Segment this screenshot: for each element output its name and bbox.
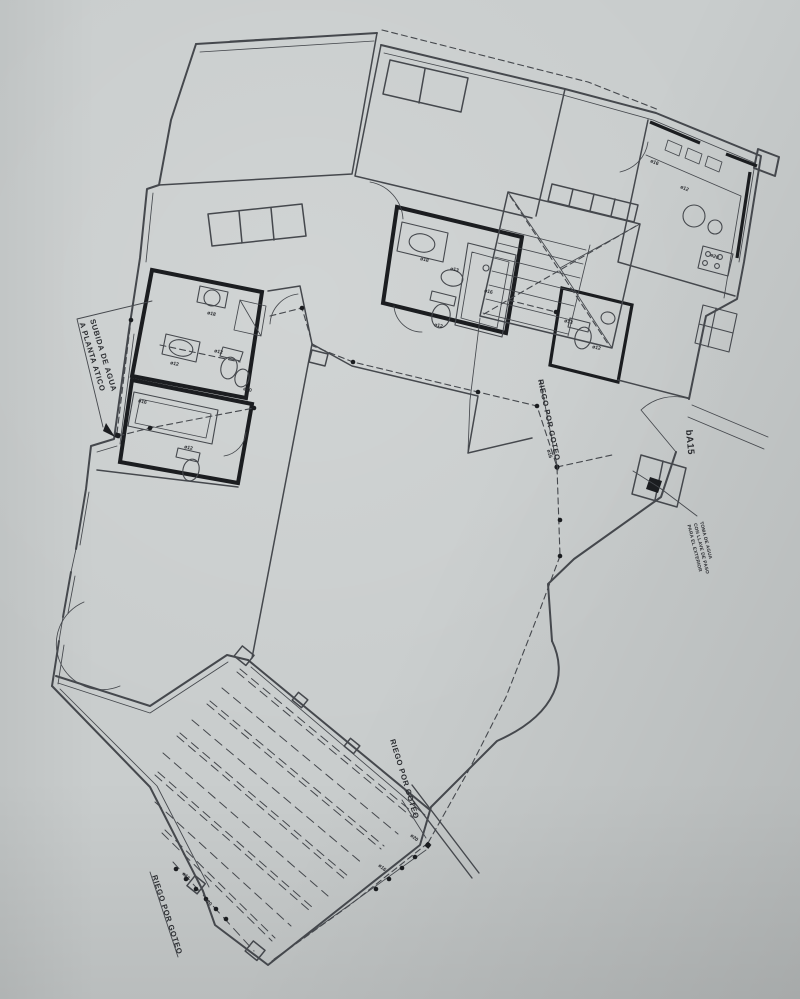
sanitary-fixtures <box>128 205 737 483</box>
exterior-walls-inner-leaf <box>58 37 768 959</box>
terrace-hatch <box>155 669 416 951</box>
pipe-diameter-tag: ø20 <box>203 897 213 907</box>
pipe-diameter-tag: ø12 <box>679 184 689 193</box>
pipe-diameter-tag: ø18 <box>207 310 217 318</box>
label-riego-3-text: RIEGO POR GOTEO <box>150 874 184 956</box>
label-door-code-text: bA15 <box>683 429 696 455</box>
pipe-diameter-tag: ø16 <box>649 158 659 167</box>
pipe-diameter-tag: ø12 <box>184 444 194 452</box>
pipe-diameter-tag: ø18 <box>420 256 430 264</box>
floor-plan-photo: SUBIDA DE AGUA A PLANTA ATICO RIEGO POR … <box>0 0 800 999</box>
pipe-diameter-tag: ø10 <box>243 386 253 394</box>
door-arcs <box>56 142 689 690</box>
pipe-diameter-tag: ø13 <box>564 318 574 326</box>
exterior-walls <box>52 33 779 965</box>
label-riego-3: RIEGO POR GOTEO <box>150 874 184 956</box>
pipe-diameter-tags: ø18ø12ø12ø10ø16ø12ø18ø13ø12ø16ø13ø12ø16ø… <box>138 158 720 907</box>
pipe-diameter-tag: ø20 <box>709 252 719 261</box>
pipe-diameter-tag: ø12 <box>170 360 180 368</box>
pipe-diameter-tag: ø12 <box>592 344 602 352</box>
subida-arrowhead <box>103 423 115 437</box>
interior-walls <box>97 33 741 658</box>
label-door-code: bA15 <box>683 429 696 455</box>
pipe-diameter-tag: ø16 <box>545 449 553 459</box>
label-exterior-note: TOMA DE AGUA CON LLAVE DE PASO PARA EL E… <box>686 521 716 576</box>
plumbing-dashed-lines <box>117 30 659 961</box>
pipe-diameter-tag: ø20 <box>409 833 420 843</box>
pipe-diameter-tag: ø12 <box>434 322 444 330</box>
label-subida: SUBIDA DE AGUA A PLANTA ATICO <box>78 318 119 396</box>
pipe-diameter-tag: ø12 <box>214 348 224 356</box>
floor-plan-drawing: SUBIDA DE AGUA A PLANTA ATICO RIEGO POR … <box>0 0 800 999</box>
pipe-diameter-tag: ø13 <box>450 266 460 274</box>
valve-symbols <box>115 306 563 922</box>
